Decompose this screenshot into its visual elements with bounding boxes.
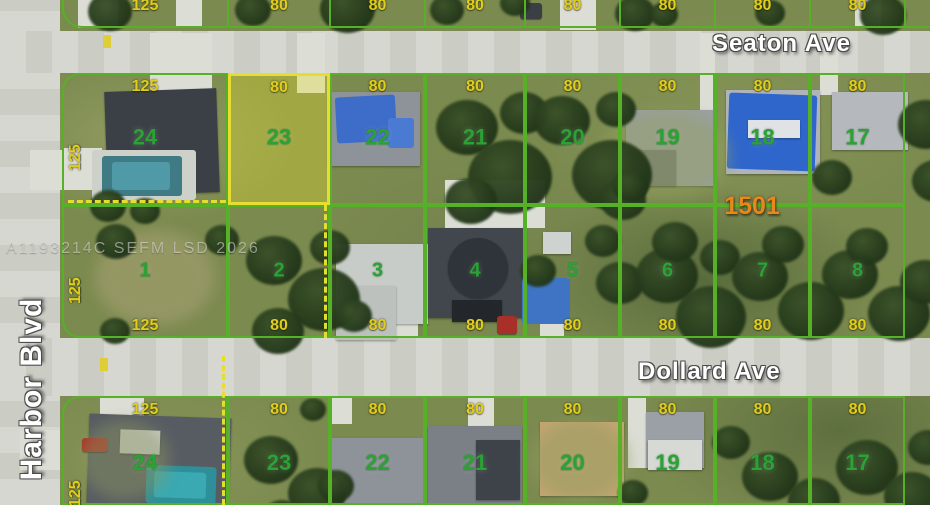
parcel-c-22: 8022 — [330, 396, 425, 505]
parcel-a-18: 8018 — [715, 73, 810, 205]
lot-side-dimension-label: 125 — [68, 107, 84, 171]
dollard-ave-label: Dollard Ave — [638, 358, 781, 386]
parcel-a-23: 8023 — [228, 73, 330, 205]
lot-number: 3 — [332, 259, 423, 282]
lot-dimension-label: 80 — [622, 78, 713, 96]
lot-number: 7 — [717, 259, 808, 282]
lot-number: 22 — [332, 125, 423, 151]
lot-number: 20 — [527, 450, 618, 476]
lot-number: 4 — [427, 259, 523, 282]
lot-dimension-label: 80 — [717, 78, 808, 96]
lot-number: 5 — [527, 259, 618, 282]
lot-number: 20 — [527, 125, 618, 151]
lot-number: 19 — [622, 125, 713, 151]
parcel-b-6: 806 — [620, 205, 715, 338]
lot-side-dimension-label: 125 — [68, 443, 84, 505]
lot-number: 6 — [622, 259, 713, 282]
lot-dimension-label: 80 — [810, 0, 905, 15]
lot-number: 1 — [64, 259, 226, 282]
lot-number: 21 — [427, 450, 523, 476]
lot-dimension-label: 125 — [64, 78, 226, 96]
lot-dimension-label: 80 — [230, 401, 328, 419]
lot-dimension-label: 125 — [62, 0, 228, 15]
lot-number: 2 — [230, 259, 328, 282]
lot-number: 24 — [64, 125, 226, 151]
lot-number: 17 — [812, 450, 903, 476]
parcel-b-8: 808 — [810, 205, 905, 338]
lot-dimension-label: 80 — [715, 0, 810, 15]
lot-number: 17 — [812, 125, 903, 151]
lot-dimension-label: 80 — [427, 401, 523, 419]
parcel-a-24: 12524125 — [62, 73, 228, 205]
lot-dimension-label: 80 — [427, 317, 523, 335]
lot-dimension-label: 125 — [64, 317, 226, 335]
dollard-ave-road — [0, 338, 930, 396]
parcel-a-22: 8022 — [330, 73, 425, 205]
lot-dimension-label: 125 — [64, 401, 226, 419]
lot-number: 22 — [332, 450, 423, 476]
boundary-dashed-line — [222, 356, 225, 505]
survey-marker — [100, 358, 108, 371]
parcel-c-23: 8023 — [228, 396, 330, 505]
parcel-c-24: 12524125 — [62, 396, 228, 505]
lot-dimension-label: 80 — [717, 317, 808, 335]
lot-dimension-label: 80 — [527, 401, 618, 419]
lot-dimension-label: 80 — [717, 401, 808, 419]
lot-dimension-label: 80 — [332, 401, 423, 419]
lot-dimension-label: 80 — [527, 78, 618, 96]
parcel-c-18: 8018 — [715, 396, 810, 505]
harbor-blvd-label: Harbor Blvd — [15, 264, 49, 505]
lot-number: 23 — [231, 125, 327, 151]
lot-dimension-label: 80 — [622, 401, 713, 419]
lot-dimension-label: 80 — [622, 317, 713, 335]
lot-dimension-label: 80 — [330, 0, 425, 15]
parcel-c-20: 8020 — [525, 396, 620, 505]
lot-dimension-label: 80 — [527, 317, 618, 335]
survey-marker — [103, 35, 111, 48]
parcel-c-19: 8019 — [620, 396, 715, 505]
lot-dimension-label: 80 — [620, 0, 715, 15]
mls-watermark: A1193214C SEFM LSD 2026 — [6, 240, 260, 258]
parcel-b-7: 807 — [715, 205, 810, 338]
boundary-dashed-line — [324, 205, 327, 338]
parcel-b-3: 803 — [330, 205, 425, 338]
parcel-c-17: 8017 — [810, 396, 905, 505]
parcel-a-19: 8019 — [620, 73, 715, 205]
lot-dimension-label: 80 — [228, 0, 330, 15]
lot-dimension-label: 80 — [525, 0, 620, 15]
lot-dimension-label: 80 — [812, 317, 903, 335]
lot-dimension-label: 80 — [425, 0, 525, 15]
lot-number: 8 — [812, 259, 903, 282]
parcel-b-4: 804 — [425, 205, 525, 338]
parcel-a-20: 8020 — [525, 73, 620, 205]
lot-number: 19 — [622, 450, 713, 476]
lot-dimension-label: 80 — [230, 317, 328, 335]
aerial-plat-map: 1258080808080808012524125802380228021802… — [0, 0, 930, 505]
parcel-a-17: 8017 — [810, 73, 905, 205]
parcel-c-21: 8021 — [425, 396, 525, 505]
lot-dimension-label: 80 — [427, 78, 523, 96]
lot-dimension-label: 80 — [812, 78, 903, 96]
lot-dimension-label: 80 — [332, 78, 423, 96]
lot-number: 18 — [717, 450, 808, 476]
lot-dimension-label: 80 — [231, 79, 327, 97]
parcel-b-5: 805 — [525, 205, 620, 338]
parcel-b-1: 1251125 — [62, 205, 228, 338]
parcel-b-2: 802 — [228, 205, 330, 338]
lot-dimension-label: 80 — [332, 317, 423, 335]
block-number-label: 1501 — [692, 192, 812, 221]
lot-number: 21 — [427, 125, 523, 151]
lot-dimension-label: 80 — [812, 401, 903, 419]
lot-number: 24 — [64, 450, 226, 476]
lot-number: 18 — [717, 125, 808, 151]
boundary-dashed-line — [68, 200, 226, 203]
parcel-a-21: 8021 — [425, 73, 525, 205]
seaton-ave-label: Seaton Ave — [712, 30, 851, 58]
lot-number: 23 — [230, 450, 328, 476]
